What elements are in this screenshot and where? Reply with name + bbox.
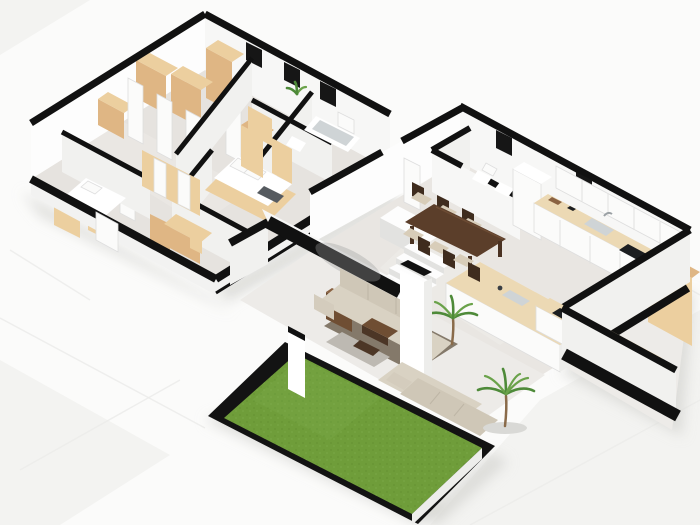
porch-pillar [288,326,305,398]
floorplan-svg: 3D isometric floor plan render of a two-… [0,0,700,525]
floorplan-render: 3D isometric floor plan render of a two-… [0,0,700,525]
